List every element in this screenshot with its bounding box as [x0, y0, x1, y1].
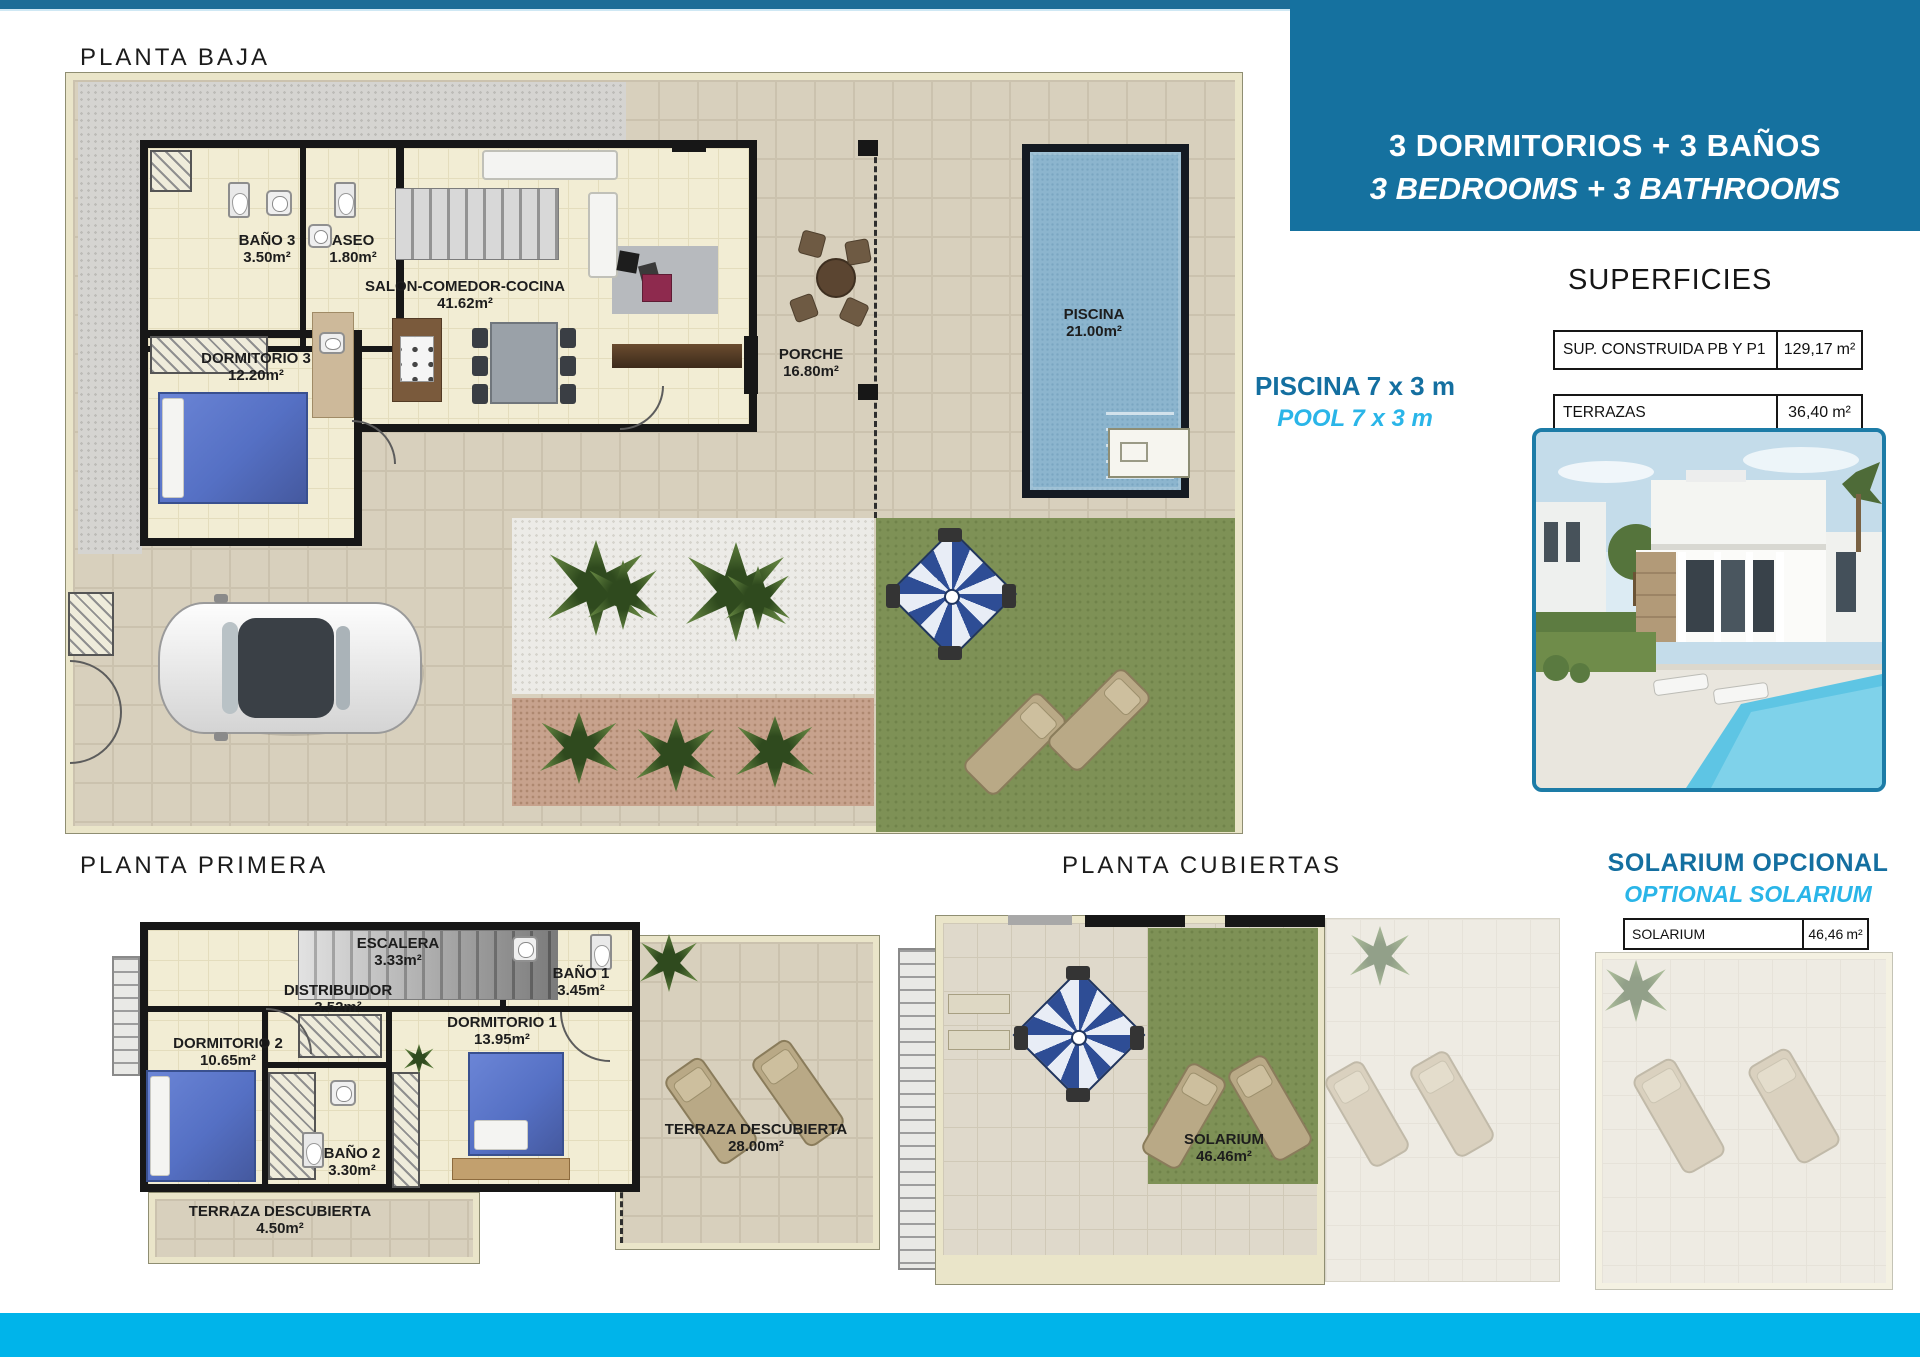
superficies-title: SUPERFICIES: [1568, 264, 1772, 297]
pool-size-note: PISCINA 7 x 3 m POOL 7 x 3 m: [1248, 371, 1462, 433]
room-area: 3.50m²: [239, 249, 296, 266]
first-floor-title: PLANTA PRIMERA: [80, 852, 328, 880]
sink-fixture: [266, 190, 292, 216]
roof-edge-bar: [1008, 915, 1072, 925]
room-name: TERRAZA DESCUBIERTA: [189, 1203, 372, 1220]
gravel-strip: [78, 342, 142, 554]
utility-glyph: [1120, 442, 1148, 462]
room-name: BAÑO 2: [324, 1145, 381, 1162]
room-name: DISTRIBUIDOR: [284, 982, 392, 999]
toilet-fixture: [302, 1132, 324, 1168]
brochure-page: { "banner": { "line1": "3 DORMITORIOS + …: [0, 0, 1920, 1357]
roof-bench: [948, 1030, 1010, 1050]
room-name: BAÑO 1: [553, 965, 610, 982]
porch-corner: [858, 140, 878, 156]
room-name: DORMITORIO 2: [173, 1035, 283, 1052]
ground-floor-title: PLANTA BAJA: [80, 44, 270, 72]
room-name: PISCINA: [1064, 306, 1125, 323]
bed-pillow: [162, 398, 184, 498]
value: 36,40: [1788, 404, 1828, 422]
room-area: 4.50m²: [189, 1220, 372, 1237]
sofa: [482, 150, 618, 180]
stool: [938, 528, 962, 542]
stool: [1014, 1026, 1028, 1050]
value: 129,17: [1784, 341, 1833, 359]
unit: m²: [1846, 926, 1862, 942]
pool-note-es: PISCINA 7 x 3 m: [1248, 371, 1462, 402]
room-area: 3.33m²: [357, 952, 440, 969]
entrance-hatch: [68, 592, 114, 656]
solarium-note-en: OPTIONAL SOLARIUM: [1600, 881, 1896, 908]
room-name: DORMITORIO 1: [447, 1014, 557, 1031]
chair: [472, 356, 488, 376]
room-area: 28.00m²: [665, 1138, 848, 1155]
room-area: 12.20m²: [201, 367, 311, 384]
unit: m²: [1837, 341, 1856, 359]
value: 46,46: [1808, 926, 1843, 942]
room-label: PORCHE 16.80m²: [779, 346, 843, 380]
sink-fixture: [330, 1080, 356, 1106]
kitchen-sink: [319, 332, 345, 354]
room-label: PISCINA 21.00m²: [1064, 306, 1125, 340]
room-label: ASEO 1.80m²: [329, 232, 377, 266]
room-label: SALON-COMEDOR-COCINA 41.62m²: [365, 278, 565, 312]
room-name: SALON-COMEDOR-COCINA: [365, 278, 565, 295]
room-label: TERRAZA DESCUBIERTA 28.00m²: [665, 1121, 848, 1155]
sink-fixture: [512, 936, 538, 962]
solarium-table-value: 46,46m²: [1804, 920, 1867, 948]
car-windshield: [222, 622, 238, 714]
interior-wall: [300, 148, 306, 348]
unit: m²: [1832, 404, 1851, 422]
dining-table: [490, 322, 558, 404]
superficies-row-value: 36,40m²: [1778, 396, 1861, 430]
room-area: 1.80m²: [329, 249, 377, 266]
chair: [472, 328, 488, 348]
superficies-row-label: TERRAZAS: [1555, 396, 1778, 430]
porch-column: [744, 336, 758, 394]
villa-photo: [1532, 428, 1886, 792]
bottom-accent-bar: [0, 1313, 1920, 1357]
room-label: BAÑO 2 3.30m²: [324, 1145, 381, 1179]
stool: [1002, 584, 1016, 608]
stool: [938, 646, 962, 660]
header-banner: 3 DORMITORIOS + 3 BAÑOS 3 BEDROOMS + 3 B…: [1290, 0, 1920, 231]
superficies-row: SUP. CONSTRUIDA PB Y P1 129,17m²: [1553, 330, 1863, 370]
exterior-stair: [112, 956, 140, 1076]
terrace-paving: [622, 942, 873, 1243]
room-label: TERRAZA DESCUBIERTA 4.50m²: [189, 1203, 372, 1237]
room-label: DORMITORIO 3 12.20m²: [201, 350, 311, 384]
banner-line-en: 3 BEDROOMS + 3 BATHROOMS: [1370, 171, 1841, 207]
stool: [1066, 1088, 1090, 1102]
solarium-note: SOLARIUM OPCIONAL OPTIONAL SOLARIUM: [1600, 849, 1896, 908]
superficies-row: TERRAZAS 36,40m²: [1553, 394, 1863, 432]
bed-pillow: [474, 1120, 528, 1150]
room-name: PORCHE: [779, 346, 843, 363]
chair: [560, 328, 576, 348]
toilet-fixture: [334, 182, 356, 218]
solarium-note-es: SOLARIUM OPCIONAL: [1600, 849, 1896, 878]
roof-edge-bar: [1085, 915, 1185, 927]
solarium-table-label: SOLARIUM: [1625, 920, 1804, 948]
porch-wall-segment: [672, 140, 706, 152]
room-name: ESCALERA: [357, 935, 440, 952]
stool: [886, 584, 900, 608]
toilet-fixture: [228, 182, 250, 218]
room-area: 3.52m²: [284, 999, 392, 1016]
room-name: BAÑO 3: [239, 232, 296, 249]
room-area: 16.80m²: [779, 363, 843, 380]
roof-stair-strip: [898, 948, 938, 1270]
pool-note-en: POOL 7 x 3 m: [1248, 405, 1462, 433]
room-area: 10.65m²: [173, 1052, 283, 1069]
roof-bench: [948, 994, 1010, 1014]
superficies-row-label: SUP. CONSTRUIDA PB Y P1: [1555, 332, 1778, 368]
optional-solarium-ghost: [1595, 952, 1893, 1290]
sofa: [588, 192, 618, 278]
wardrobe: [392, 1072, 420, 1188]
porch-corner: [858, 384, 878, 400]
chair: [472, 384, 488, 404]
room-area: 41.62m²: [365, 295, 565, 312]
cooktop: [400, 336, 434, 382]
room-name: TERRAZA DESCUBIERTA: [665, 1121, 848, 1138]
car-mirror: [214, 594, 228, 603]
car-mirror: [214, 732, 228, 741]
bed-bench: [452, 1158, 570, 1180]
chair: [560, 356, 576, 376]
room-name: SOLARIUM: [1184, 1131, 1264, 1148]
solarium-table: SOLARIUM 46,46m²: [1623, 918, 1869, 950]
shower: [150, 150, 192, 192]
banner-line-es: 3 DORMITORIOS + 3 BAÑOS: [1389, 128, 1821, 164]
ghost-paving: [1602, 959, 1886, 1283]
stool: [1130, 1026, 1144, 1050]
room-area: 46.46m²: [1184, 1148, 1264, 1165]
room-name: ASEO: [329, 232, 377, 249]
room-label: DISTRIBUIDOR 3.52m²: [284, 982, 392, 1016]
room-label: SOLARIUM 46.46m²: [1184, 1131, 1264, 1165]
superficies-row-value: 129,17m²: [1778, 332, 1861, 368]
kitchen-counter: [312, 312, 354, 418]
room-label: BAÑO 3 3.50m²: [239, 232, 296, 266]
room-name: DORMITORIO 3: [201, 350, 311, 367]
patio-chair: [844, 238, 872, 266]
roof-edge-bar: [1225, 915, 1325, 927]
staircase: [395, 188, 559, 260]
coffee-table: [642, 274, 672, 302]
media-console: [612, 344, 742, 368]
optional-solarium-ghost: [1325, 918, 1560, 1282]
room-label: BAÑO 1 3.45m²: [553, 965, 610, 999]
room-label: DORMITORIO 2 10.65m²: [173, 1035, 283, 1069]
roof-title: PLANTA CUBIERTAS: [1062, 852, 1342, 880]
stool: [1066, 966, 1090, 980]
bed-pillow: [150, 1076, 170, 1176]
car-roof: [238, 618, 334, 718]
villa-photo-art: [1536, 432, 1882, 788]
room-area: 21.00m²: [1064, 323, 1125, 340]
room-area: 13.95m²: [447, 1031, 557, 1048]
car-rear-window: [336, 626, 350, 710]
room-area: 3.45m²: [553, 982, 610, 999]
room-label: DORMITORIO 1 13.95m²: [447, 1014, 557, 1048]
chair: [560, 384, 576, 404]
floor-cushion: [616, 250, 639, 273]
boundary-dashed-line: [874, 148, 877, 518]
top-accent-bar: [0, 0, 1290, 11]
room-label: ESCALERA 3.33m²: [357, 935, 440, 969]
room-area: 3.30m²: [324, 1162, 381, 1179]
